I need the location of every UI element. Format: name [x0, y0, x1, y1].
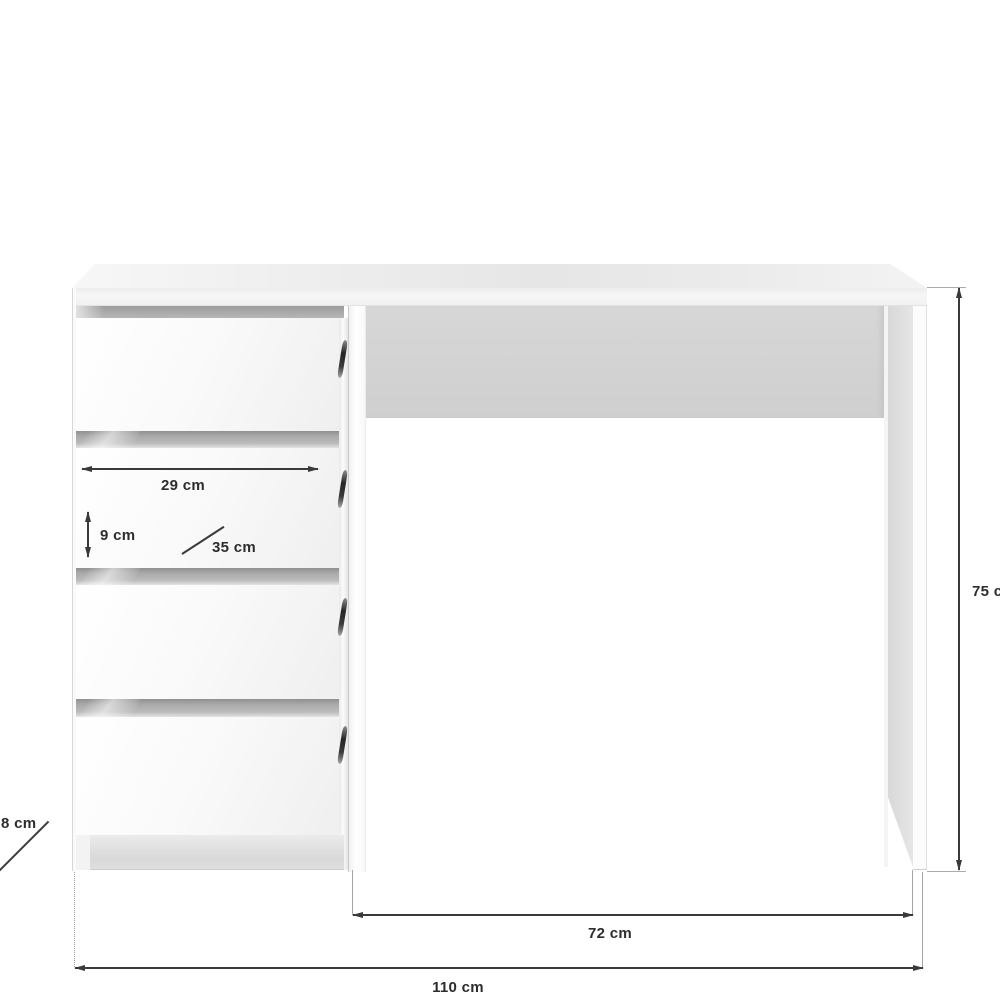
drawer-gap-1 — [76, 431, 339, 448]
right-panel-edge-highlight — [884, 306, 888, 867]
drawer-gap-3 — [76, 699, 339, 717]
arrowhead-icon — [308, 466, 319, 472]
drawer-unit-top-shadow — [76, 306, 344, 318]
drawer-front-4 — [76, 717, 339, 835]
dimension-label-kneehole-width: 72 cm — [545, 925, 675, 943]
extension-line — [352, 870, 353, 915]
drawer-front-2 — [76, 448, 339, 568]
extension-line — [912, 870, 913, 915]
drawer-front-3 — [76, 585, 339, 699]
extension-line — [927, 871, 966, 872]
dimension-line-overall-width — [75, 967, 923, 969]
arrowhead-icon — [956, 287, 962, 298]
dimension-label-drawer-height: 9 cm — [100, 527, 135, 545]
dimension-line-drawer-width — [82, 468, 318, 470]
dimension-label-desk-height: 75 cm — [972, 583, 1000, 601]
dimension-diagram: 29 cm 9 cm 35 cm 75 cm 72 cm 110 cm 8 cm — [0, 0, 1000, 1000]
dimension-line-kneehole-width — [353, 914, 913, 916]
arrowhead-icon — [352, 912, 363, 918]
dimension-line-drawer-height — [87, 512, 89, 557]
desk-top-surface — [72, 264, 927, 288]
dimension-line-desk-height — [958, 288, 960, 870]
dimension-label-overall-width: 110 cm — [393, 979, 523, 997]
right-side-panel-outer-face — [913, 306, 927, 870]
desk-top-front-edge — [72, 288, 927, 306]
arrowhead-icon — [74, 965, 85, 971]
drawer-gap-2 — [76, 568, 339, 585]
drawer-front-1 — [76, 318, 339, 431]
extension-line — [922, 872, 923, 967]
dimension-label-drawer-depth: 35 cm — [212, 539, 256, 557]
arrowhead-icon — [956, 860, 962, 871]
arrowhead-icon — [913, 965, 924, 971]
dimension-label-left-edge: 8 cm — [1, 815, 36, 833]
arrowhead-icon — [85, 547, 91, 558]
dimension-label-drawer-width: 29 cm — [118, 477, 248, 495]
drawer-unit-plinth-cap — [76, 835, 90, 870]
drawer-unit-right-edge — [339, 318, 348, 870]
kneehole-back-panel — [366, 306, 884, 418]
arrowhead-icon — [81, 466, 92, 472]
arrowhead-icon — [903, 912, 914, 918]
drawer-unit-plinth — [76, 835, 344, 870]
extension-line — [74, 872, 75, 967]
right-side-panel-inner-face — [888, 306, 913, 867]
arrowhead-icon — [85, 511, 91, 522]
center-partition-panel — [348, 306, 366, 872]
